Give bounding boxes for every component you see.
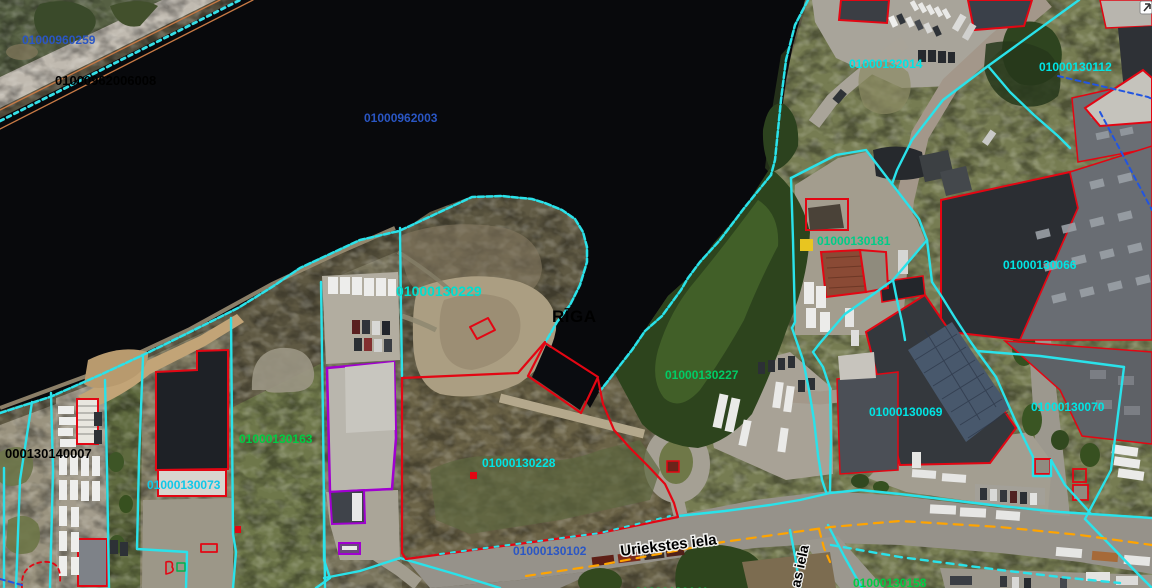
svg-text:01000130102: 01000130102: [513, 544, 587, 558]
svg-text:01000130229: 01000130229: [396, 283, 482, 299]
svg-text:01000130066: 01000130066: [1003, 258, 1077, 272]
svg-text:01000130227: 01000130227: [665, 368, 739, 382]
svg-text:01000130181: 01000130181: [817, 234, 891, 248]
svg-text:01000962006008: 01000962006008: [55, 73, 156, 88]
svg-text:000130140007: 000130140007: [5, 446, 92, 461]
svg-text:01000130163: 01000130163: [239, 432, 313, 446]
svg-text:01000130228: 01000130228: [482, 456, 556, 470]
svg-text:01000130070: 01000130070: [1031, 400, 1105, 414]
svg-text:01000960259: 01000960259: [22, 33, 96, 47]
svg-text:01000962003: 01000962003: [364, 111, 438, 125]
svg-text:01000130112: 01000130112: [1039, 60, 1112, 74]
svg-text:01000130158: 01000130158: [853, 576, 927, 588]
svg-text:01000130069: 01000130069: [869, 405, 943, 419]
svg-text:01000132014: 01000132014: [849, 57, 923, 71]
svg-text:01000130073: 01000130073: [147, 478, 221, 492]
svg-text:RĪGA: RĪGA: [552, 307, 597, 326]
